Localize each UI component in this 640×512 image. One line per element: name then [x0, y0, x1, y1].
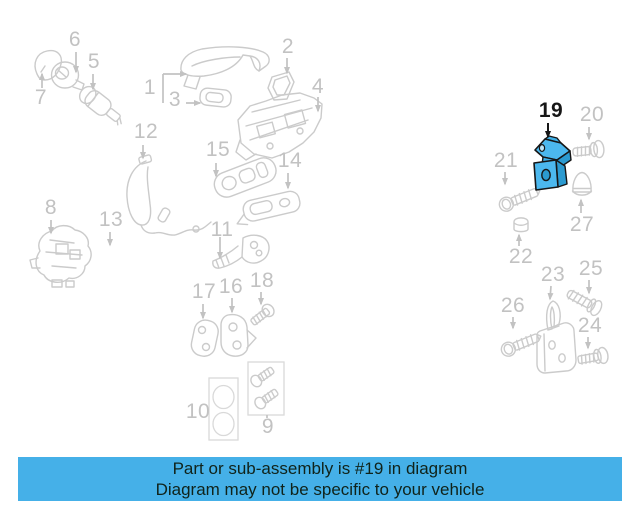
parts-diagram-line-art	[0, 0, 640, 512]
banner-line-1: Part or sub-assembly is #19 in diagram	[173, 458, 468, 479]
part-18-screw	[248, 302, 276, 328]
part-14-inner-handle-bezel	[233, 190, 302, 227]
part-19-hinge-bracket-highlighted	[534, 136, 571, 190]
part-20-screw	[572, 140, 605, 160]
leader-arrow	[550, 286, 551, 299]
part-9-screw-kit	[248, 362, 284, 415]
part-4-lock-actuator	[236, 93, 322, 160]
part-8-door-latch	[30, 226, 91, 287]
part-27-dome-cap	[573, 173, 592, 196]
part-15-escutcheon-plate	[211, 154, 280, 200]
banner: Part or sub-assembly is #19 in diagram D…	[18, 457, 622, 501]
leader-arrows	[42, 52, 589, 418]
part-5-key-cylinder	[76, 83, 128, 129]
part-1-door-handle	[181, 47, 269, 89]
banner-line-2: Diagram may not be specific to your vehi…	[156, 479, 485, 500]
part-13-latch-cable	[141, 222, 211, 235]
parts-diagram-page: 6572134121514813111716181091920212722232…	[0, 0, 640, 512]
part-12-lock-cable	[127, 155, 171, 226]
part-23-striker	[537, 301, 576, 373]
part-7-gasket	[35, 51, 61, 80]
part-17-plate	[189, 318, 220, 358]
part-25-bolt	[564, 286, 604, 317]
part-6-lock-cap	[52, 62, 85, 90]
part-22-cap	[514, 218, 528, 232]
part-3-handle-bezel	[199, 87, 232, 107]
part-24-bolt	[577, 347, 609, 368]
part-10-gasket-plate	[209, 378, 238, 440]
part-11-bracket	[213, 235, 269, 268]
